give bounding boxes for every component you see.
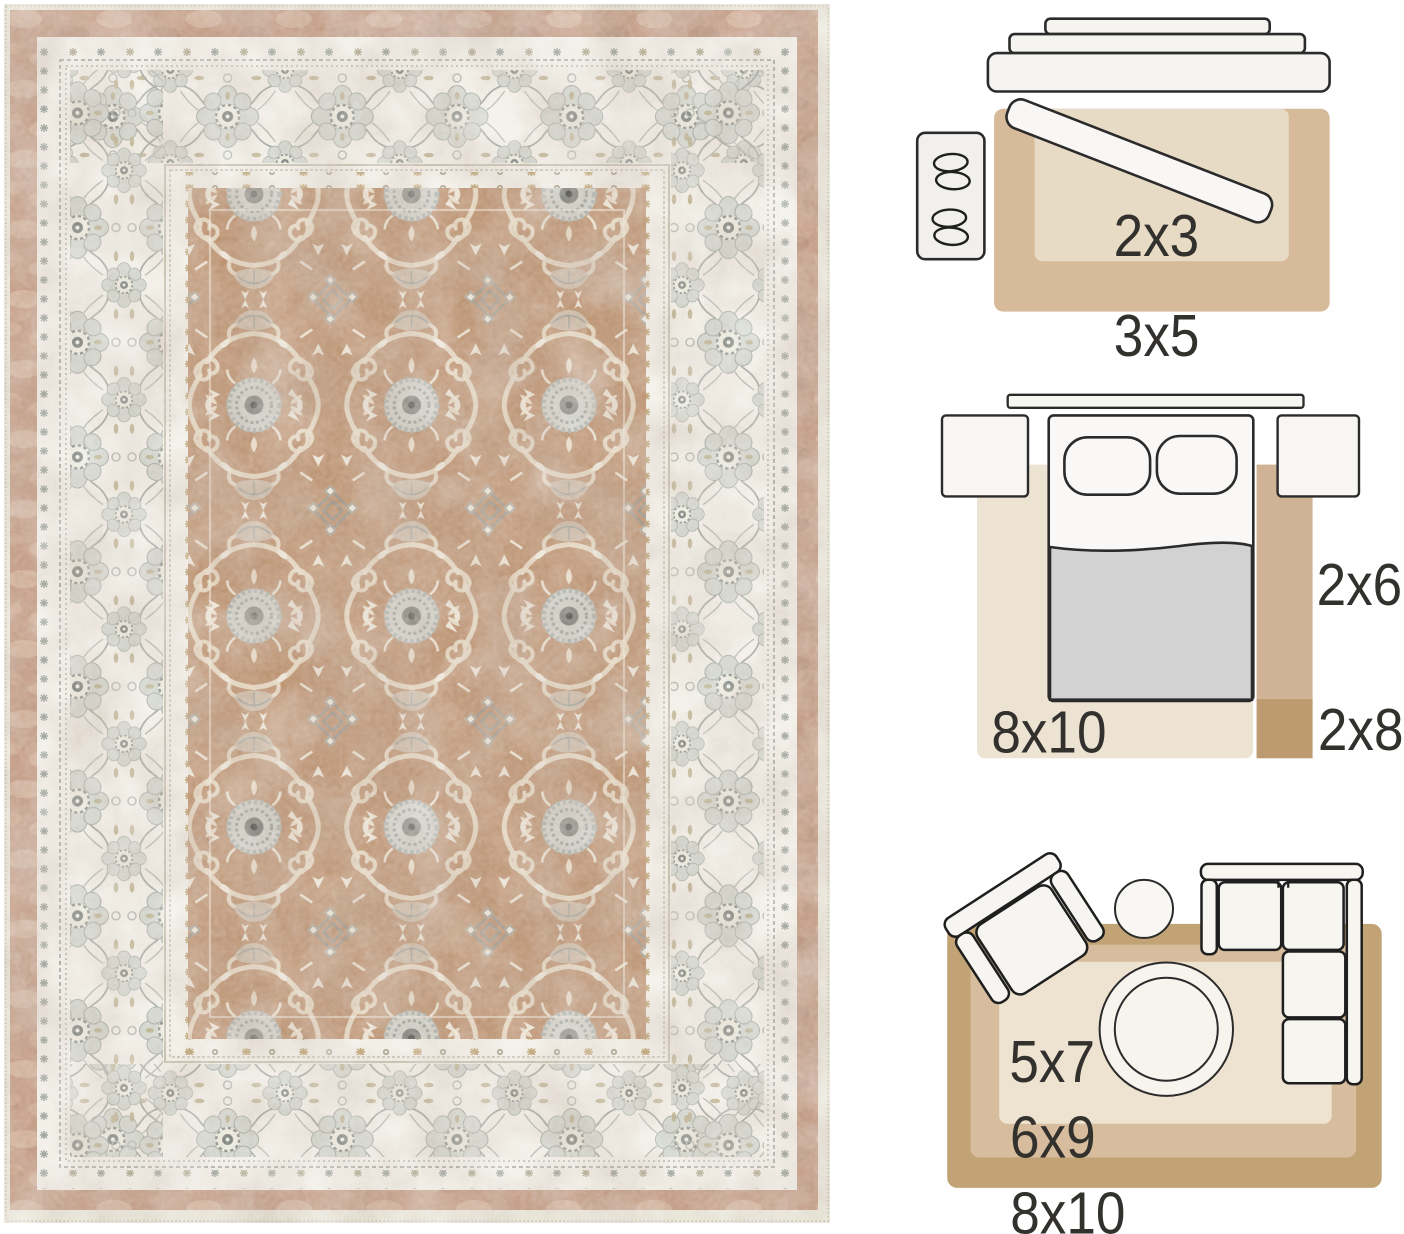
svg-text:3x5: 3x5 <box>1114 302 1200 368</box>
svg-text:5x7: 5x7 <box>1009 1028 1095 1094</box>
svg-text:2x3: 2x3 <box>1114 202 1200 268</box>
svg-text:8x10: 8x10 <box>1010 1180 1125 1234</box>
svg-text:8x10: 8x10 <box>991 699 1106 765</box>
svg-text:2x8: 2x8 <box>1318 696 1404 762</box>
svg-text:2x6: 2x6 <box>1317 551 1403 617</box>
svg-text:6x9: 6x9 <box>1010 1104 1096 1170</box>
